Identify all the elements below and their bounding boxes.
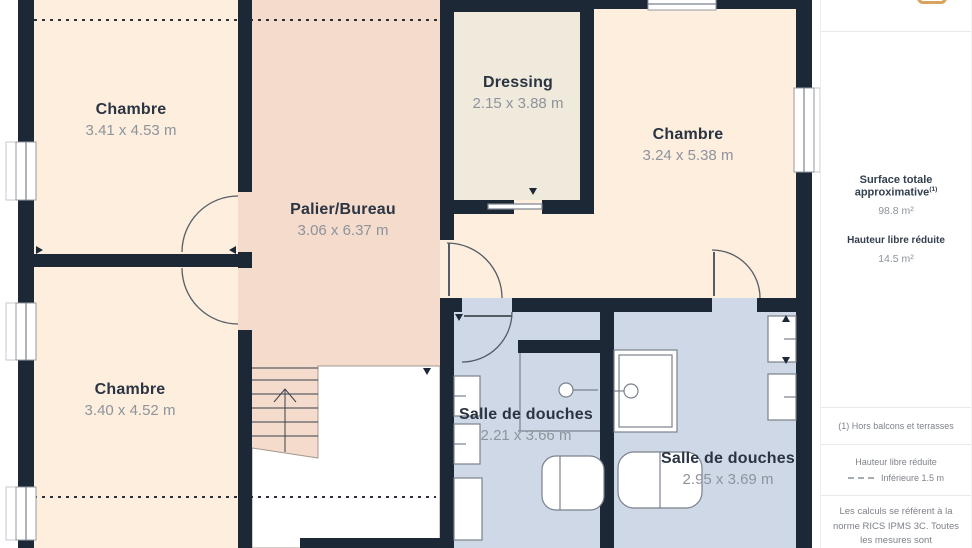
room-dimensions: 3.40 x 4.52 m <box>85 402 176 419</box>
room-dimensions: 2.21 x 3.66 m <box>459 427 593 444</box>
room-name: Dressing <box>473 74 564 92</box>
room-name: Palier/Bureau <box>290 201 396 219</box>
floor-plan-viewer: Chambre 3.41 x 4.53 m Palier/Bureau 3.06… <box>0 0 972 548</box>
room-dimensions: 3.41 x 4.53 m <box>86 122 177 139</box>
reduced-height-label: Hauteur libre réduite <box>847 235 945 246</box>
room-label-chambre-3: Chambre 3.40 x 4.52 m <box>85 381 176 419</box>
room-name: Chambre <box>86 101 177 119</box>
room-name: Chambre <box>643 126 734 144</box>
footnote-marker: (1) <box>929 186 937 193</box>
dashed-line-swatch <box>848 477 874 479</box>
info-sidebar: Surface totale approximative(1) 98.8 m² … <box>820 0 972 548</box>
room-dimensions: 2.15 x 3.88 m <box>473 95 564 112</box>
legend-title: Hauteur libre réduite <box>855 457 937 467</box>
room-name: Salle de douches <box>459 406 593 424</box>
room-label-chambre-1: Chambre 3.41 x 4.53 m <box>86 101 177 139</box>
legend-section: Hauteur libre réduite Inférieure 1.5 m <box>821 444 971 495</box>
room-label-chambre-2: Chambre 3.24 x 5.38 m <box>643 126 734 164</box>
shower-head-icon <box>624 384 638 398</box>
room-name: Chambre <box>85 381 176 399</box>
room-dimensions: 2.95 x 3.69 m <box>661 471 795 488</box>
room-label-dressing: Dressing 2.15 x 3.88 m <box>473 74 564 112</box>
brand-logo <box>917 0 947 4</box>
surface-total-value: 98.8 m² <box>878 205 914 217</box>
room-name: Salle de douches <box>661 450 795 468</box>
legend-row: Inférieure 1.5 m <box>848 473 944 483</box>
disclaimer: Les calculs se réfèrent à la norme RICS … <box>821 495 971 548</box>
legend-item-label: Inférieure 1.5 m <box>881 473 944 483</box>
room-dimensions: 3.24 x 5.38 m <box>643 147 734 164</box>
bathtub-icon <box>542 456 604 510</box>
surface-stats-section: Surface totale approximative(1) 98.8 m² … <box>821 31 971 407</box>
room-dimensions: 3.06 x 6.37 m <box>290 222 396 239</box>
shower-head-icon <box>559 383 573 397</box>
room-label-salle-de-douches-2: Salle de douches 2.95 x 3.69 m <box>661 450 795 488</box>
room-label-palier-bureau: Palier/Bureau 3.06 x 6.37 m <box>290 201 396 239</box>
sliding-door <box>488 204 542 209</box>
footnote: (1) Hors balcons et terrasses <box>821 407 971 444</box>
room-label-salle-de-douches-1: Salle de douches 2.21 x 3.66 m <box>459 406 593 444</box>
floor-plan: Chambre 3.41 x 4.53 m Palier/Bureau 3.06… <box>0 0 822 548</box>
cabinet-icon <box>454 478 482 540</box>
logo-row <box>821 0 971 31</box>
surface-total-label: Surface totale approximative(1) <box>829 174 963 199</box>
reduced-height-value: 14.5 m² <box>878 253 914 265</box>
